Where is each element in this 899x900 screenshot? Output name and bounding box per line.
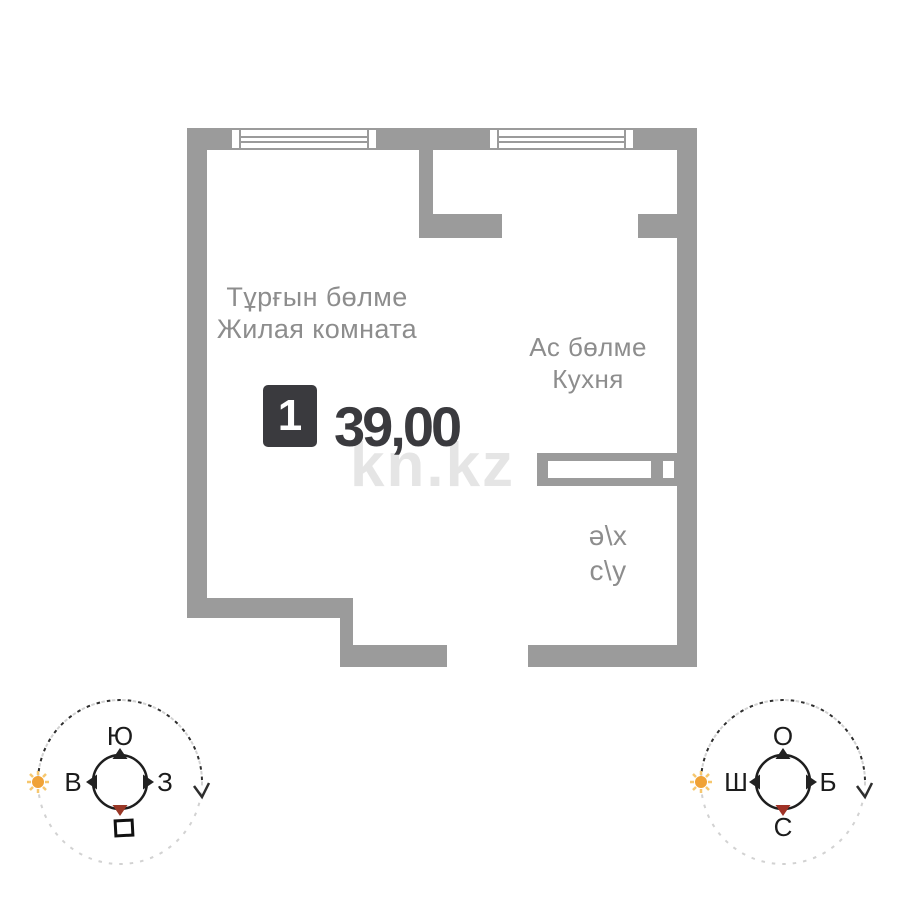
bathroom-label-ru: с\у [548, 553, 668, 588]
window-symbol-kitchen [488, 128, 635, 150]
window-cap [624, 128, 635, 150]
window-edge [488, 128, 635, 130]
compass-label-right: З [157, 767, 173, 797]
room-count-badge: 1 [263, 385, 317, 447]
window-edge [488, 148, 635, 150]
compass-kazakh: О Ш Б С [688, 687, 878, 877]
window-cap [488, 128, 499, 150]
living-room-label: Тұрғын бөлме Жилая комната [212, 281, 422, 345]
compass-label-left: Ш [724, 767, 748, 797]
duct-opening [548, 461, 651, 478]
area-value: 39,00 [334, 394, 459, 459]
kitchen-label: Ас бөлме Кухня [495, 331, 681, 395]
north-marker [113, 805, 128, 816]
kitchen-label-ru: Кухня [495, 363, 681, 395]
compass-label-right: Б [819, 767, 836, 797]
room-count-value: 1 [278, 391, 302, 441]
window-cap [230, 128, 241, 150]
window-pane [240, 136, 368, 138]
wall-bottom-middle [340, 645, 447, 667]
window-pane [498, 136, 625, 138]
bathroom-label-kk: ә\х [548, 518, 668, 553]
wall-bottom-left [187, 598, 353, 618]
window-edge [230, 128, 378, 130]
compass-dial [93, 755, 147, 809]
compass-label-top: Ю [107, 721, 133, 751]
sun-icon [690, 771, 712, 793]
pointer-left [749, 775, 760, 790]
wall-right [677, 128, 697, 667]
window-edge [230, 148, 378, 150]
compass-label-left: В [64, 767, 81, 797]
wall-left [187, 128, 207, 618]
wall-interior-stub-left [419, 214, 502, 238]
wall-interior-stub-right [638, 214, 677, 238]
pointer-right [806, 775, 817, 790]
living-room-label-kk: Тұрғын бөлме [212, 281, 422, 313]
window-symbol-living [230, 128, 378, 150]
building-marker-icon [115, 820, 133, 836]
bathroom-partition [537, 453, 697, 486]
window-pane [498, 141, 625, 143]
bathroom-label: ә\х с\у [548, 518, 668, 588]
compass-russian: Ю В З [25, 687, 215, 877]
compass-dial [756, 755, 810, 809]
compass-label-bottom: С [774, 812, 793, 842]
wall-top-middle [378, 128, 488, 150]
sun-icon [27, 771, 49, 793]
window-pane [240, 141, 368, 143]
compass-label-top: О [773, 721, 793, 751]
duct-opening [663, 461, 674, 478]
kitchen-label-kk: Ас бөлме [495, 331, 681, 363]
pointer-left [86, 775, 97, 790]
wall-bottom-right [528, 645, 697, 667]
window-cap [367, 128, 378, 150]
pointer-right [143, 775, 154, 790]
living-room-label-ru: Жилая комната [212, 313, 422, 345]
